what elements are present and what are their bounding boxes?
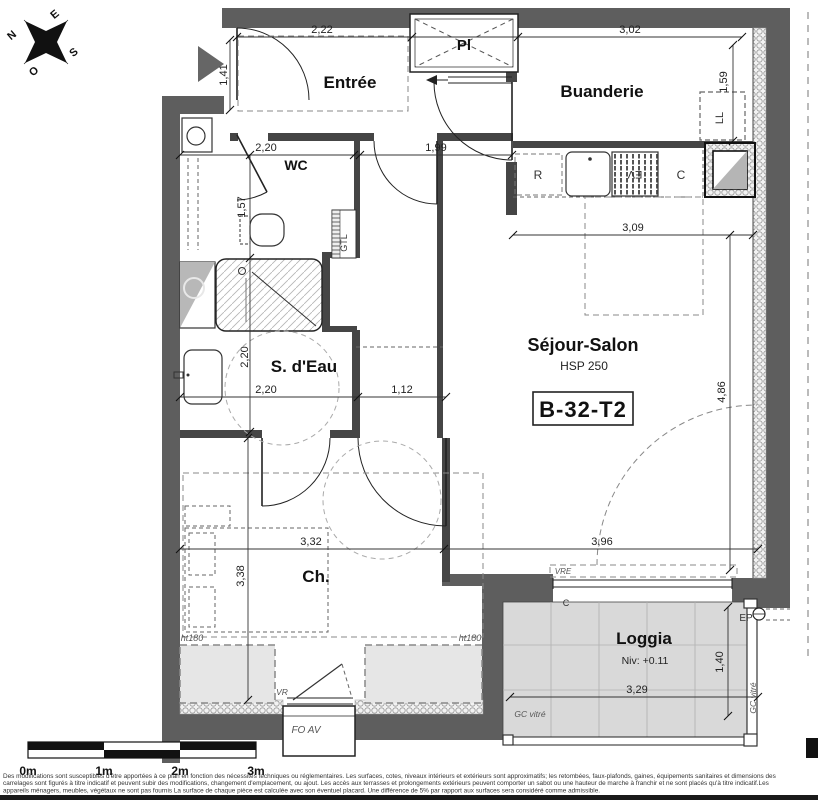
dim-label-1-12: 1,12 xyxy=(391,384,412,396)
room-label-ch: Ch. xyxy=(302,567,329,586)
footer-divider xyxy=(0,795,818,800)
room-label-s-jour-salon: Séjour-Salon xyxy=(527,335,638,355)
shower-tray xyxy=(216,259,322,331)
room-label-loggia: Loggia xyxy=(616,629,672,648)
dim-label-3-38: 3,38 xyxy=(235,565,247,586)
unit-id-block: B-32-T2 xyxy=(533,392,633,425)
floor-plan-page: NESO xyxy=(0,0,818,800)
sub-label-hsp-250: HSP 250 xyxy=(560,359,608,373)
nightstand xyxy=(185,506,230,526)
annotation-fo-av: FO AV xyxy=(291,725,321,736)
compass-rose: NESO xyxy=(5,8,81,79)
compass-letter-s: S xyxy=(67,46,80,60)
dim-label-4-86: 4,86 xyxy=(716,381,728,402)
dim-label-1-40: 1,40 xyxy=(714,651,726,672)
pillow xyxy=(189,587,215,627)
ht180-zone-left xyxy=(180,645,275,703)
kitchen-sink xyxy=(566,152,610,196)
annotation-ev: EV xyxy=(627,168,642,180)
compass-letter-n: N xyxy=(5,29,19,43)
room-label-buanderie: Buanderie xyxy=(560,82,643,101)
room-label-wc: WC xyxy=(284,157,307,173)
compass-letter-e: E xyxy=(48,8,61,22)
dim-label-2-20: 2,20 xyxy=(239,346,251,367)
room-label-s-d-eau: S. d'Eau xyxy=(271,357,337,376)
annotation-ep: EP xyxy=(739,613,753,624)
dim-label-2-20: 2,20 xyxy=(255,142,276,154)
disclaimer-line-2: carrelages sont figurés à titre indicati… xyxy=(3,780,769,787)
sub-label-niv-0-11: Niv: +0.11 xyxy=(622,655,669,667)
ht180-zone-right xyxy=(365,645,482,703)
floor-plan-drawing: NESO xyxy=(0,0,818,800)
annotation-ht180: ht180 xyxy=(459,633,482,643)
compass-letter-o: O xyxy=(27,64,42,79)
site-boundary xyxy=(806,12,818,758)
washbasin xyxy=(184,350,222,404)
dim-label-3-32: 3,32 xyxy=(300,536,321,548)
annotation-vre: VRE xyxy=(555,567,572,576)
dim-label-3-02: 3,02 xyxy=(619,24,640,36)
annotation-gtl: GTL xyxy=(339,234,349,252)
disclaimer-line-1: Des modifications sont susceptibles d'êt… xyxy=(3,773,776,780)
toilet-bowl xyxy=(250,214,284,246)
dim-label-1-59: 1,59 xyxy=(718,71,730,92)
sliding-door-arrow-icon xyxy=(426,75,437,85)
room-label-pl: Pl xyxy=(457,37,471,54)
compass-star xyxy=(14,12,67,72)
annotation-c: C xyxy=(677,168,686,182)
unit-id: B-32-T2 xyxy=(539,397,627,422)
annotation-gc-vitr: GC vitré xyxy=(748,682,758,713)
dim-label-1-41: 1,41 xyxy=(218,64,230,85)
dim-label-3-09: 3,09 xyxy=(622,222,643,234)
annotation-ll: LL xyxy=(714,112,726,124)
annotation-gc-vitr: GC vitré xyxy=(514,709,545,719)
pillow xyxy=(189,533,215,575)
bedroom-window xyxy=(283,664,355,756)
room-label-entr-e: Entrée xyxy=(324,73,377,92)
dim-label-3-96: 3,96 xyxy=(591,536,612,548)
annotation-vr: VR xyxy=(276,687,288,697)
annotation-ht180: ht180 xyxy=(181,633,204,643)
dim-label-3-29: 3,29 xyxy=(626,684,647,696)
dim-label-2-22: 2,22 xyxy=(311,24,332,36)
annotation-r: R xyxy=(534,168,543,182)
dim-label-1-99: 1,99 xyxy=(425,142,446,154)
disclaimer-line-3: appareils ménagers, meubles, végétaux ne… xyxy=(3,787,600,794)
annotation-c: C xyxy=(563,598,570,608)
dim-label-2-20: 2,20 xyxy=(255,384,276,396)
dim-label-1-57: 1,57 xyxy=(236,196,248,217)
toilet-cistern xyxy=(240,216,250,244)
